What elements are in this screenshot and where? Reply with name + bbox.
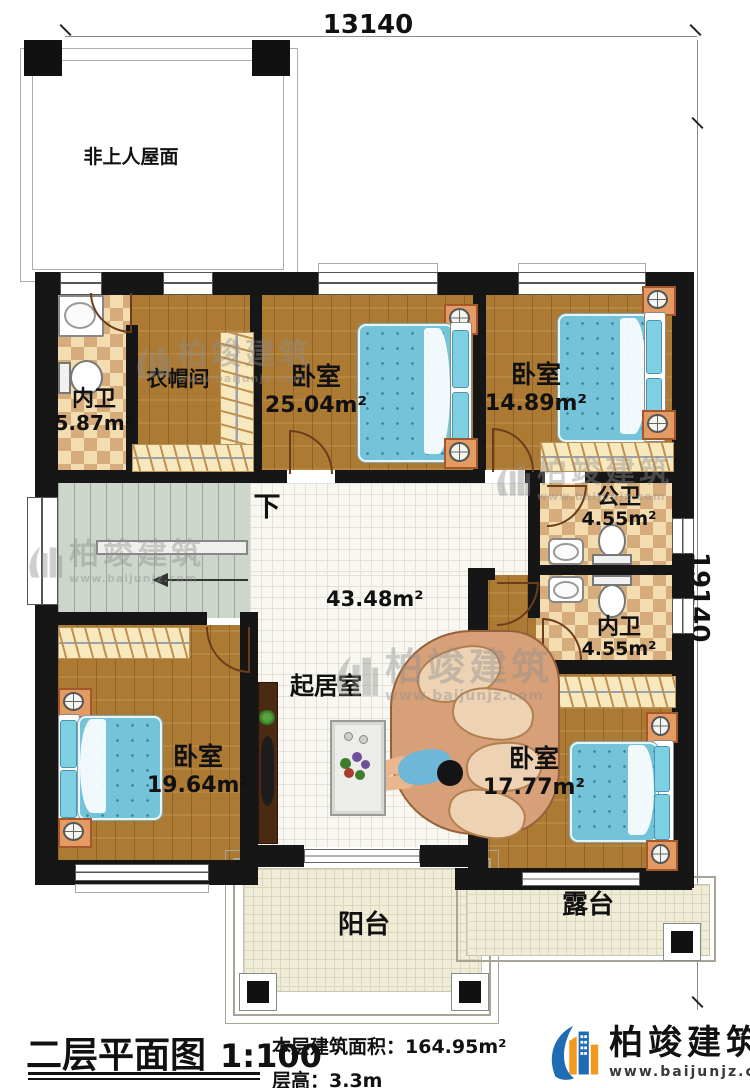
wall-stair-bedroom — [35, 612, 207, 625]
window-top-4 — [518, 272, 646, 295]
plant-icon — [259, 710, 275, 725]
flower-icon — [355, 770, 365, 780]
drawing-info: 本层建筑面积：164.95m² 层高：3.3m — [272, 1032, 506, 1088]
balcony-column — [240, 974, 276, 1010]
brand-website: www.baijunjz.com — [609, 1064, 750, 1080]
room-area-bedroom-bottom-left: 19.64m² — [144, 774, 252, 797]
room-label-terrace: 露台 — [548, 892, 628, 919]
window-right-bath-public — [672, 518, 694, 554]
room-area-bath-public: 4.55m² — [576, 510, 662, 530]
wall-bedroom-right-entry — [468, 568, 495, 580]
living-room-floor — [250, 483, 536, 575]
dimension-line-right — [697, 40, 698, 1010]
sink-basin — [64, 302, 96, 329]
floor-height-label: 层高： — [272, 1070, 329, 1088]
title-underline — [28, 1072, 260, 1080]
room-label-balcony: 阳台 — [324, 912, 404, 939]
room-label-bath-top: 内卫 — [56, 388, 132, 411]
stair-direction-line — [168, 579, 248, 581]
room-label-cloakroom: 衣帽间 — [132, 368, 224, 390]
wardrobe — [132, 444, 254, 472]
brand-logo-icon — [545, 1024, 601, 1082]
window-top-2 — [163, 272, 213, 295]
room-label-living: 起居室 — [276, 674, 376, 699]
bed-sheet-fold — [424, 328, 450, 454]
drawing-title: 二层平面图 — [26, 1026, 206, 1078]
floor-plan-canvas: 13140 19140 非上人屋面 — [0, 0, 750, 1088]
window-bedroom-left — [75, 864, 209, 881]
room-area-bedroom-top-right: 14.89m² — [484, 392, 588, 415]
stair-direction-arrow — [152, 573, 168, 587]
room-label-bath-public: 公卫 — [586, 486, 652, 509]
bed-pillow — [654, 794, 670, 840]
dimension-tick — [59, 24, 71, 36]
bed-pillow — [60, 720, 77, 768]
room-area-living: 43.48m² — [326, 588, 422, 610]
wall-right — [672, 272, 694, 888]
roof-label: 非上人屋面 — [66, 148, 196, 168]
room-label-bedroom-bottom-right: 卧室 — [494, 746, 574, 772]
nightstand — [646, 840, 678, 871]
floor-area-value: 164.95m² — [405, 1036, 506, 1058]
dimension-top-value: 13140 — [313, 10, 423, 40]
coffee-table — [330, 720, 386, 816]
dimension-tick — [689, 24, 701, 36]
wardrobe — [540, 442, 674, 472]
bed-pillow — [654, 746, 670, 792]
room-label-bedroom-top-mid: 卧室 — [276, 364, 356, 390]
bed-pillow — [452, 330, 469, 388]
nightstand — [642, 410, 676, 440]
balcony-sliding-door — [304, 849, 420, 863]
wall-bath-divider — [536, 565, 674, 575]
room-area-bath-top: 5.87m² — [46, 413, 142, 434]
terrace-sliding-door — [522, 872, 640, 886]
wardrobe — [220, 332, 254, 446]
stair-down-label: 下 — [250, 494, 284, 522]
roof-column — [24, 40, 62, 76]
roof-column — [252, 40, 290, 76]
room-label-bedroom-top-right: 卧室 — [498, 362, 574, 388]
balcony-column — [452, 974, 488, 1010]
room-label-bath-ensuite: 内卫 — [586, 616, 652, 639]
flower-icon — [352, 752, 362, 762]
terrace-column — [664, 924, 700, 960]
wardrobe — [58, 627, 190, 659]
room-area-bath-ensuite: 4.55m² — [576, 640, 662, 660]
nightstand — [646, 712, 678, 743]
bed-pillow — [60, 770, 77, 818]
nightstand — [444, 438, 478, 469]
room-area-bedroom-bottom-right: 17.77m² — [480, 776, 588, 799]
flower-icon — [361, 760, 370, 769]
stair-handrail — [96, 540, 248, 555]
tv-icon — [261, 736, 274, 806]
toilet-bowl — [598, 584, 626, 618]
table-cup — [359, 735, 368, 744]
floor-area-label: 本层建筑面积： — [272, 1036, 405, 1058]
room-label-bedroom-bottom-left: 卧室 — [158, 744, 238, 770]
bed-sheet-fold — [628, 745, 654, 835]
sink-basin — [553, 543, 579, 561]
nightstand — [58, 818, 92, 848]
floor-height-value: 3.3m — [329, 1070, 382, 1088]
sink-basin — [553, 581, 579, 599]
brand-name: 柏竣建筑 — [609, 1026, 750, 1060]
table-cup — [344, 732, 353, 741]
window-top-3 — [318, 272, 438, 295]
window-left-stairs — [27, 497, 58, 605]
person-head — [437, 760, 463, 786]
bed-pillow — [646, 320, 662, 374]
brand-logo: 柏竣建筑 www.baijunjz.com — [545, 1024, 750, 1082]
window-top-1 — [60, 272, 102, 295]
flower-icon — [344, 768, 354, 778]
bed-sheet-fold — [80, 719, 106, 813]
toilet-tank — [592, 554, 632, 565]
wall-living-bottom — [420, 845, 470, 867]
window-right-bath-ensuite — [672, 598, 694, 634]
room-area-bedroom-top-mid: 25.04m² — [258, 394, 374, 417]
wall-corridor — [335, 470, 485, 483]
window-sill — [75, 884, 209, 893]
